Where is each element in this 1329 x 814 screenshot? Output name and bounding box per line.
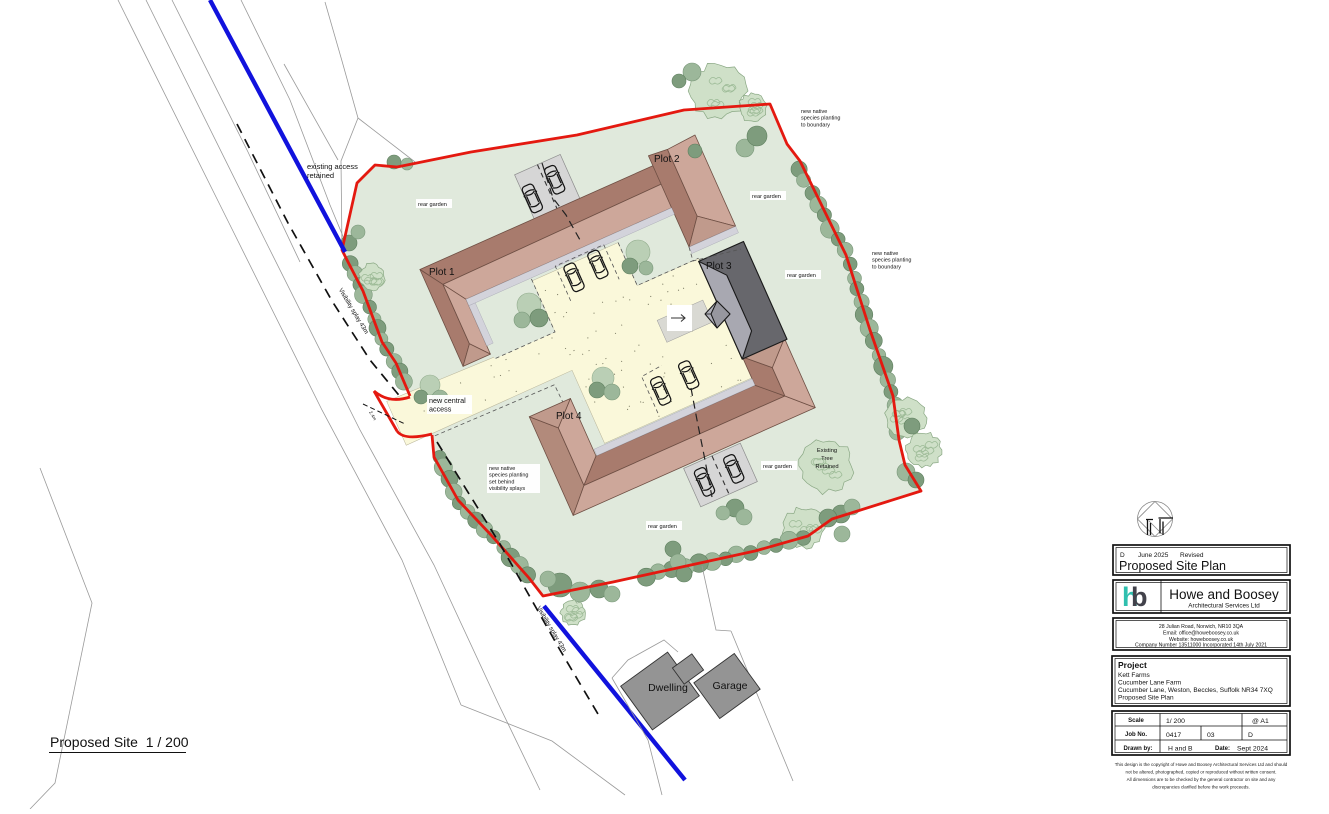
svg-text:new native: new native [872, 251, 898, 257]
svg-text:b: b [1131, 582, 1148, 612]
svg-text:to boundary: to boundary [872, 264, 901, 270]
svg-text:Proposed Site 1 / 200: Proposed Site 1 / 200 [50, 734, 189, 750]
svg-text:Tree: Tree [821, 456, 833, 462]
svg-text:@ A1: @ A1 [1252, 718, 1269, 725]
svg-text:Email: office@howeboosey.co.uk: Email: office@howeboosey.co.uk [1163, 631, 1239, 637]
svg-text:Plot 3: Plot 3 [706, 261, 732, 272]
svg-text:new native: new native [489, 466, 515, 472]
svg-text:June 2025: June 2025 [1138, 552, 1169, 559]
svg-text:species planting: species planting [872, 258, 911, 264]
svg-text:Company Number 13511000 Incorp: Company Number 13511000 Incorporated 14t… [1135, 643, 1267, 649]
svg-text:Cucumber Lane Farm: Cucumber Lane Farm [1118, 680, 1181, 687]
svg-text:Dwelling: Dwelling [648, 682, 688, 694]
svg-text:rear garden: rear garden [648, 524, 677, 530]
svg-text:species planting: species planting [801, 116, 840, 122]
svg-text:rear garden: rear garden [787, 273, 816, 279]
svg-text:set behind: set behind [489, 479, 514, 485]
svg-text:Sept 2024: Sept 2024 [1237, 746, 1268, 753]
svg-text:D: D [1248, 732, 1253, 739]
svg-text:03: 03 [1207, 732, 1215, 739]
svg-text:Project: Project [1118, 660, 1147, 670]
svg-text:28 Julian Road, Norwich, NR10: 28 Julian Road, Norwich, NR10 3QA [1159, 624, 1244, 630]
svg-text:Garage: Garage [712, 680, 747, 692]
svg-text:H and B: H and B [1168, 746, 1193, 753]
svg-text:Howe and Boosey: Howe and Boosey [1169, 587, 1279, 602]
svg-text:This design is the copyright o: This design is the copyright of Howe and… [1115, 762, 1288, 767]
svg-text:species planting: species planting [489, 473, 528, 479]
svg-text:D: D [1120, 552, 1125, 559]
svg-text:Proposed Site Plan: Proposed Site Plan [1118, 695, 1174, 702]
svg-text:rear garden: rear garden [418, 202, 447, 208]
svg-text:Revised: Revised [1180, 552, 1204, 559]
svg-text:not be altered, photographed,: not be altered, photographed, copied or … [1125, 770, 1276, 775]
svg-text:Existing: Existing [817, 448, 837, 454]
svg-text:to boundary: to boundary [801, 122, 830, 128]
svg-text:Plot 2: Plot 2 [654, 154, 680, 165]
svg-text:Job No.: Job No. [1125, 732, 1147, 738]
svg-text:Plot 1: Plot 1 [429, 267, 455, 278]
svg-text:Proposed Site Plan: Proposed Site Plan [1119, 559, 1226, 573]
svg-text:Scale: Scale [1128, 718, 1144, 724]
svg-text:discrepancies clarified before: discrepancies clarified before the work … [1152, 785, 1250, 790]
svg-text:rear garden: rear garden [752, 194, 781, 200]
svg-text:existing access: existing access [307, 162, 358, 171]
svg-text:Retained: Retained [815, 464, 838, 470]
svg-text:Drawn by:: Drawn by: [1123, 746, 1152, 752]
svg-text:1/ 200: 1/ 200 [1166, 718, 1185, 725]
svg-text:access: access [429, 404, 452, 413]
svg-text:Cucumber Lane, Weston, Beccles: Cucumber Lane, Weston, Beccles, Suffolk … [1118, 687, 1273, 694]
svg-text:Architectural Services Ltd: Architectural Services Ltd [1188, 603, 1260, 610]
svg-text:visibility splays: visibility splays [489, 486, 525, 492]
svg-text:new native: new native [801, 109, 827, 115]
svg-text:retained: retained [307, 171, 334, 180]
svg-text:All dimensions are to be check: All dimensions are to be checked by the … [1127, 777, 1277, 782]
svg-text:rear garden: rear garden [763, 464, 792, 470]
svg-text:Date:: Date: [1215, 746, 1230, 752]
svg-text:Kett Farms: Kett Farms [1118, 672, 1151, 679]
svg-text:Plot 4: Plot 4 [556, 411, 582, 422]
svg-text:0417: 0417 [1166, 732, 1181, 739]
